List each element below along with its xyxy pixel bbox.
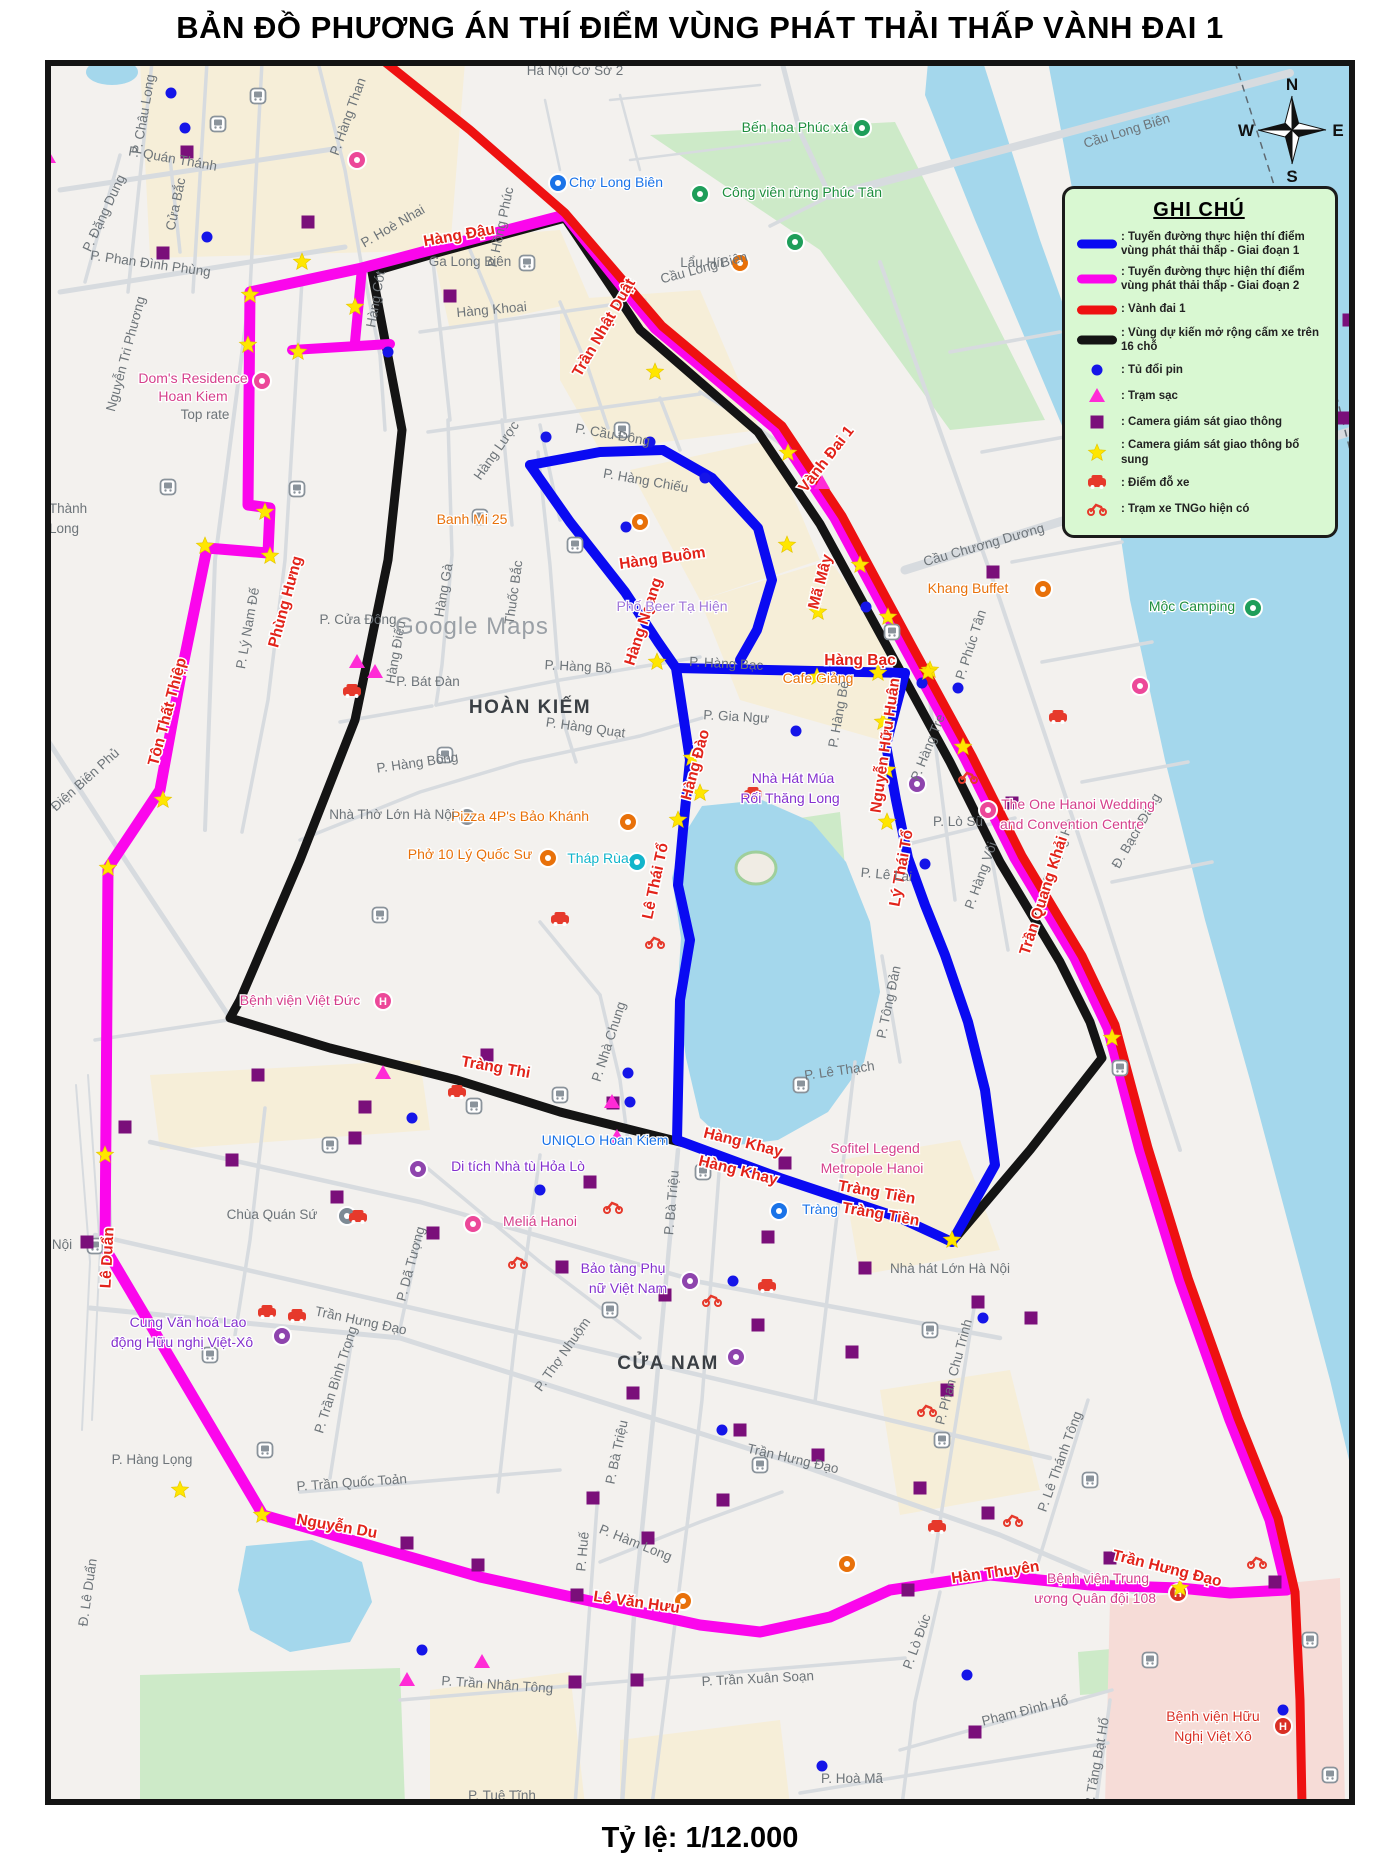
battery-swap-marker: [728, 1276, 739, 1287]
map-label: Công viên rừng Phúc Tân: [722, 184, 882, 200]
map-label: P. Hoà Mã: [821, 1771, 884, 1786]
traffic-camera-marker: [859, 1262, 872, 1275]
traffic-camera-marker: [119, 1121, 132, 1134]
poi-icon: [409, 1160, 427, 1178]
map-label: Long: [49, 521, 79, 536]
traffic-camera-marker: [972, 1296, 985, 1309]
battery-swap-marker: [166, 88, 177, 99]
battery-swap-marker: [407, 1113, 418, 1124]
traffic-camera-marker: [914, 1482, 927, 1495]
poi-icon: [727, 1348, 745, 1366]
poi-icon: [549, 174, 567, 192]
map-label: P. Hàng Lọng: [112, 1452, 193, 1467]
map-label: Bến hoa Phúc xá: [742, 119, 849, 135]
map-label: and Convention Centre: [1000, 816, 1144, 832]
transit-stop-icon: [1083, 1473, 1098, 1488]
map-label: Hoan Kiem: [158, 388, 227, 404]
legend-label: : Tuyến đường thực hiện thí điểm vùng ph…: [1121, 230, 1325, 259]
transit-stop-icon: [323, 1138, 338, 1153]
legend-item-9: : Trạm xe TNGo hiện có: [1073, 499, 1325, 519]
traffic-camera-marker: [587, 1492, 600, 1505]
traffic-camera-marker: [631, 1674, 644, 1687]
traffic-camera-marker: [349, 1132, 362, 1145]
battery-swap-marker: [861, 602, 872, 613]
map-label: động Hữu nghị Việt-Xô: [111, 1334, 253, 1350]
transit-stop-icon: [373, 908, 388, 923]
transit-stop-icon: [568, 538, 583, 553]
battery-swap-marker: [625, 1097, 636, 1108]
traffic-camera-marker: [472, 1559, 485, 1572]
traffic-camera-marker: [331, 1191, 344, 1204]
legend-label: : Tuyến đường thực hiện thí điểm vùng ph…: [1121, 265, 1325, 294]
battery-swap-marker: [791, 726, 802, 737]
turtle-tower-island: [736, 852, 776, 884]
map-label: Meliá Hanoi: [503, 1213, 577, 1229]
legend-item-6: : Camera giám sát giao thông: [1073, 412, 1325, 432]
traffic-camera-marker: [987, 566, 1000, 579]
legend-item-3: : Vùng dự kiến mở rộng cấm xe trên 16 ch…: [1073, 326, 1325, 355]
compass-letter-w: W: [1238, 121, 1255, 140]
battery-swap-marker: [180, 123, 191, 134]
traffic-camera-marker: [762, 1231, 775, 1244]
battery-swap-marker: [541, 432, 552, 443]
map-label: ương Quân đội 108: [1034, 1590, 1156, 1606]
map-label: Nghị Việt Xô: [1174, 1728, 1252, 1744]
poi-icon: [273, 1327, 291, 1345]
legend-label: : Vành đai 1: [1121, 302, 1325, 316]
transit-stop-icon: [290, 482, 305, 497]
map-label: Nhà Thờ Lớn Hà Nội: [329, 807, 455, 822]
battery-swap-marker: [917, 678, 928, 689]
map-label: Sofitel Legend: [830, 1140, 920, 1156]
traffic-camera-marker: [717, 1494, 730, 1507]
map-label: P. Lò Sũ: [933, 814, 983, 829]
transit-stop-icon: [885, 625, 900, 640]
traffic-camera-marker: [556, 1261, 569, 1274]
svg-text:H: H: [1279, 1721, 1287, 1733]
traffic-camera-marker: [444, 290, 457, 303]
legend-label: : Camera giám sát giao thông bổ sung: [1121, 438, 1325, 467]
traffic-camera-marker: [1091, 416, 1104, 429]
hospital-area: [1105, 1578, 1345, 1805]
map-label: UNIQLO Hoan Kiem: [542, 1132, 669, 1148]
legend-symbol-line-icon: [1073, 330, 1121, 350]
legend-label: : Trạm xe TNGo hiện có: [1121, 502, 1325, 516]
map-label: Lẩu Hít: [680, 255, 724, 270]
poi-icon: [770, 1202, 788, 1220]
battery-swap-marker: [623, 1068, 634, 1079]
map-label: Banh Mi 25: [437, 511, 508, 527]
battery-swap-marker: [621, 522, 632, 533]
map-label: Nhà hát Lớn Hà Nội: [890, 1261, 1010, 1276]
traffic-camera-marker: [982, 1507, 995, 1520]
map-label: Top rate: [181, 407, 230, 422]
map-label: Dom's Residence: [138, 370, 247, 386]
poi-icon: [786, 233, 804, 251]
map-label: HOÀN KIẾM: [469, 696, 591, 718]
poi-icon: [853, 119, 871, 137]
legend-label: : Camera giám sát giao thông: [1121, 415, 1325, 429]
map-label: Bệnh viện Hữu: [1166, 1708, 1259, 1724]
map-label: P. Bát Đàn: [396, 674, 460, 689]
map-label: Metropole Hanoi: [821, 1160, 924, 1176]
traffic-camera-marker: [427, 1227, 440, 1240]
map-label: Chùa Quán Sứ: [227, 1207, 318, 1222]
tngo-station-marker: [1088, 505, 1106, 515]
map-scale: Tỷ lệ: 1/12.000: [0, 1822, 1400, 1855]
poi-icon: [681, 1272, 699, 1290]
legend-symbol-star-icon: [1073, 443, 1121, 463]
map-label: Bệnh viện Trung: [1047, 1570, 1149, 1586]
traffic-camera-marker: [571, 1589, 584, 1602]
transit-stop-icon: [251, 89, 266, 104]
poi-icon: [838, 1555, 856, 1573]
traffic-camera-marker: [627, 1387, 640, 1400]
transit-stop-icon: [935, 1433, 950, 1448]
map-label: nữ Việt Nam: [589, 1280, 667, 1296]
map-label: Di tích Nhà tù Hỏa Lò: [451, 1158, 585, 1174]
added-camera-marker: [1088, 444, 1105, 460]
battery-swap-marker: [978, 1313, 989, 1324]
legend-label: : Tủ đổi pin: [1121, 363, 1325, 377]
page-title: BẢN ĐỒ PHƯƠNG ÁN THÍ ĐIỂM VÙNG PHÁT THẢI…: [0, 10, 1400, 46]
map-label: Bệnh viện Việt Đức: [240, 992, 360, 1008]
map-label: Bảo tàng Phụ: [581, 1260, 666, 1276]
transit-stop-icon: [1303, 1633, 1318, 1648]
transit-stop-icon: [211, 117, 226, 132]
traffic-camera-marker: [734, 1424, 747, 1437]
map-legend: GHI CHÚ : Tuyến đường thực hiện thí điểm…: [1062, 186, 1338, 538]
transit-stop-icon: [467, 1099, 482, 1114]
map-label: Nội: [52, 1237, 72, 1252]
map-label: Lê Duẩn: [97, 1227, 117, 1289]
transit-stop-icon: [1113, 1061, 1128, 1076]
charging-station-marker: [1089, 388, 1105, 402]
transit-stop-icon: [520, 256, 535, 271]
legend-symbol-moto-icon: [1073, 499, 1121, 519]
legend-symbol-line-icon: [1073, 300, 1121, 320]
traffic-camera-marker: [902, 1584, 915, 1597]
legend-item-4: : Tủ đổi pin: [1073, 360, 1325, 380]
battery-swap-marker: [535, 1185, 546, 1196]
battery-swap-marker: [417, 1645, 428, 1656]
legend-title: GHI CHÚ: [1073, 199, 1325, 222]
legend-items: : Tuyến đường thực hiện thí điểm vùng ph…: [1073, 230, 1325, 519]
map-label: Phở 10 Lý Quốc Sư: [408, 846, 532, 862]
map-label: Cung Văn hoá Lao: [130, 1314, 247, 1330]
transit-stop-icon: [161, 480, 176, 495]
traffic-camera-marker: [302, 216, 315, 229]
transit-stop-icon: [1143, 1653, 1158, 1668]
poi-icon: [1244, 599, 1262, 617]
traffic-camera-marker: [584, 1176, 597, 1189]
traffic-camera-marker: [569, 1676, 582, 1689]
map-label: P. Cửa Đông: [319, 612, 396, 627]
battery-swap-marker: [953, 683, 964, 694]
battery-swap-marker: [962, 1670, 973, 1681]
poi-icon: [1131, 677, 1149, 695]
poi-icon: [1034, 580, 1052, 598]
map-label: Chợ Long Biên: [569, 174, 663, 190]
compass-letter-s: S: [1286, 167, 1297, 186]
map-label: Mộc Camping: [1149, 598, 1235, 614]
map-label: Tháp Rùa: [567, 850, 629, 866]
transit-stop-icon: [603, 1303, 618, 1318]
poster-page: BẢN ĐỒ PHƯƠNG ÁN THÍ ĐIỂM VÙNG PHÁT THẢI…: [0, 0, 1400, 1870]
legend-symbol-car-icon: [1073, 473, 1121, 493]
battery-swap-marker: [383, 347, 394, 358]
transit-stop-icon: [553, 1088, 568, 1103]
battery-swap-marker: [700, 473, 711, 484]
traffic-camera-marker: [752, 1319, 765, 1332]
traffic-camera-marker: [1025, 1312, 1038, 1325]
map-label: The One Hanoi Wedding: [1001, 796, 1155, 812]
map-label: Pizza 4P's Bảo Khánh: [451, 808, 589, 824]
poi-icon: [628, 853, 646, 871]
legend-symbol-dot-icon: [1073, 360, 1121, 380]
traffic-camera-marker: [401, 1537, 414, 1550]
poi-icon: [691, 185, 709, 203]
svg-text:H: H: [379, 996, 387, 1008]
traffic-camera-marker: [252, 1069, 265, 1082]
legend-item-8: : Điểm đỗ xe: [1073, 473, 1325, 493]
legend-item-2: : Vành đai 1: [1073, 300, 1325, 320]
map-label: Rối Thăng Long: [740, 790, 839, 806]
legend-symbol-line-icon: [1073, 269, 1121, 289]
battery-swap-marker: [202, 232, 213, 243]
poi-icon: [631, 513, 649, 531]
legend-item-0: : Tuyến đường thực hiện thí điểm vùng ph…: [1073, 230, 1325, 259]
legend-label: : Trạm sạc: [1121, 389, 1325, 403]
map-label: Nhà Hát Múa: [752, 770, 835, 786]
hospital-icon: H: [1274, 1717, 1292, 1735]
traffic-camera-marker: [1269, 1576, 1282, 1589]
transit-stop-icon: [258, 1443, 273, 1458]
map-label: Tràng: [802, 1201, 838, 1217]
compass-letter-n: N: [1286, 75, 1298, 94]
map-label: Khang Buffet: [928, 580, 1009, 596]
traffic-camera-marker: [846, 1346, 859, 1359]
map-label: CỬA NAM: [617, 1352, 719, 1374]
legend-label: : Vùng dự kiến mở rộng cấm xe trên 16 ch…: [1121, 326, 1325, 355]
legend-item-7: : Camera giám sát giao thông bổ sung: [1073, 438, 1325, 467]
legend-label: : Điểm đỗ xe: [1121, 476, 1325, 490]
battery-swap-marker: [920, 859, 931, 870]
traffic-camera-marker: [969, 1726, 982, 1739]
traffic-camera-marker: [81, 1236, 94, 1249]
battery-swap-marker: [817, 1761, 828, 1772]
map-label: Phố Beer Tạ Hiện: [616, 598, 727, 614]
traffic-camera-marker: [226, 1154, 239, 1167]
poi-icon: [348, 151, 366, 169]
poi-icon: [464, 1215, 482, 1233]
legend-symbol-triangle-icon: [1073, 386, 1121, 406]
map-label: Hàng Bạc: [824, 652, 896, 669]
legend-symbol-square-icon: [1073, 412, 1121, 432]
park-area: [140, 1668, 405, 1805]
legend-symbol-line-icon: [1073, 234, 1121, 254]
battery-swap-marker: [717, 1425, 728, 1436]
transit-stop-icon: [923, 1323, 938, 1338]
map-label: Google Maps: [395, 613, 549, 640]
legend-item-5: : Trạm sạc: [1073, 386, 1325, 406]
map-label: Thành: [49, 501, 87, 516]
battery-swap-marker: [1092, 365, 1103, 376]
traffic-camera-marker: [1338, 412, 1351, 425]
parking-point-marker: [1088, 475, 1106, 489]
legend-item-1: : Tuyến đường thực hiện thí điểm vùng ph…: [1073, 265, 1325, 294]
battery-swap-marker: [1278, 1705, 1289, 1716]
compass-letter-e: E: [1332, 121, 1343, 140]
hospital-icon: H: [374, 992, 392, 1010]
poi-icon: [619, 813, 637, 831]
transit-stop-icon: [1323, 1768, 1338, 1783]
poi-icon: [539, 849, 557, 867]
poi-icon: [253, 372, 271, 390]
traffic-camera-marker: [359, 1101, 372, 1114]
